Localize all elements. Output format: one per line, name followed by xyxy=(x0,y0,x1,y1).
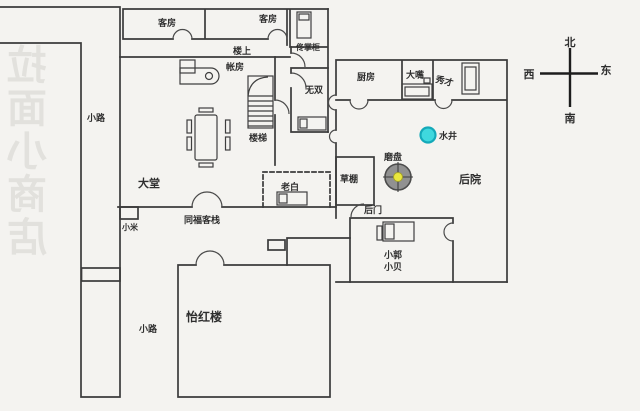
road-gate-box xyxy=(82,268,121,281)
compass-north-label: 北 xyxy=(565,35,576,49)
well-icon xyxy=(421,128,436,143)
door-arc-kitchen xyxy=(350,100,368,109)
tong-room-walls xyxy=(290,9,328,132)
door-arc-wushuang-room xyxy=(291,73,306,88)
label-zhangfang: 帐房 xyxy=(226,61,244,73)
bed-xiaoguo-side xyxy=(377,226,382,240)
label-main-hall: 大堂 xyxy=(138,176,160,190)
counter-stool-icon xyxy=(206,73,213,80)
labels-group: 客房 客房 楼上 佟掌柜 无双 帐房 楼梯 大堂 厨房 大嘴 秀才 水井 磨盘 … xyxy=(86,13,481,335)
millstone-center xyxy=(394,173,403,182)
connector-small-box xyxy=(268,240,285,250)
hall-stool-r1 xyxy=(226,120,231,133)
doors-group xyxy=(173,30,453,266)
hall-table-icon xyxy=(195,115,217,160)
kitchen-wing-walls xyxy=(336,60,507,282)
door-arc-courtyard-west-upper xyxy=(329,95,337,110)
label-guest-room-2: 客房 xyxy=(258,13,277,25)
stove-dazui-box xyxy=(424,78,430,83)
hall-stool-r2 xyxy=(226,137,231,150)
compass-east-label: 东 xyxy=(601,63,612,77)
label-xiaobei: 小贝 xyxy=(383,261,402,273)
counter-desk-icon xyxy=(180,60,195,73)
door-arc-xiucai-room xyxy=(435,100,452,109)
door-arc-guestroom1 xyxy=(173,30,192,40)
label-millstone: 磨盘 xyxy=(383,151,402,163)
label-straw-shed: 草棚 xyxy=(340,173,358,185)
door-arc-courtyard-west-lower xyxy=(330,130,337,143)
door-arc-tong-room xyxy=(291,53,305,67)
staircase-icon xyxy=(248,76,273,128)
bed-tong-pillow xyxy=(299,14,309,20)
label-upstairs: 楼上 xyxy=(233,45,251,57)
compass-west-label: 西 xyxy=(524,68,535,81)
door-arc-back-door xyxy=(351,204,364,217)
compass: 北 南 西 东 xyxy=(524,35,612,125)
door-arc-hall-corridor xyxy=(275,100,289,114)
label-wushuang: 无双 xyxy=(304,85,323,96)
road-walls xyxy=(0,7,120,397)
walls-group xyxy=(0,7,507,397)
label-guest-room-1: 客房 xyxy=(157,17,176,29)
label-well: 水井 xyxy=(439,130,457,142)
door-arc-xiaoguo-room xyxy=(444,223,453,241)
xiaomi-box xyxy=(120,207,138,219)
counter-rounded-icon xyxy=(180,68,219,84)
label-tong-zhanggui: 佟掌柜 xyxy=(295,42,320,52)
hall-bench-bottom xyxy=(199,163,213,167)
label-back-door: 后门 xyxy=(364,204,382,216)
bed-wushuang-pillow xyxy=(300,119,307,128)
label-xiaomi: 小米 xyxy=(121,222,139,232)
label-dazui: 大嘴 xyxy=(406,69,424,81)
bed-laobai-pillow xyxy=(279,194,287,203)
label-path-lower: 小路 xyxy=(138,323,158,335)
compass-south-label: 南 xyxy=(565,111,576,125)
label-xiaoguo: 小郭 xyxy=(383,249,402,261)
floorplan-page: 拉面小商店 xyxy=(0,0,640,411)
compass-cross xyxy=(540,48,598,107)
floorplan-svg: 北 南 西 东 客房 客房 楼上 佟掌柜 无双 帐房 楼梯 大堂 厨房 大嘴 秀… xyxy=(0,0,640,411)
hall-bench-top xyxy=(199,108,213,112)
door-arc-guestroom2 xyxy=(268,30,287,40)
label-yihonglou: 怡红楼 xyxy=(186,309,222,324)
label-laobai: 老白 xyxy=(280,181,299,193)
stove-dazui xyxy=(402,84,432,99)
label-stairs: 楼梯 xyxy=(249,132,267,144)
label-inn-sign: 同福客栈 xyxy=(184,214,220,226)
staircase-treads xyxy=(248,77,273,126)
label-path-upper: 小路 xyxy=(86,112,106,124)
door-arc-main-entrance xyxy=(192,192,222,207)
stove-dazui-inner xyxy=(405,87,429,96)
yihonglou-walls xyxy=(178,265,330,397)
label-xiucai: 秀才 xyxy=(433,73,454,89)
millstone-icon xyxy=(383,162,413,192)
hall-stool-l1 xyxy=(187,120,192,133)
label-kitchen: 厨房 xyxy=(357,71,375,83)
hall-stool-l2 xyxy=(187,137,192,150)
bed-xiaoguo-pillow xyxy=(385,224,394,239)
connector-walls xyxy=(287,238,350,265)
door-arc-yihonglou xyxy=(196,251,224,265)
label-backyard: 后院 xyxy=(459,172,481,186)
bed-xiaoguo xyxy=(383,222,414,241)
cabinet-xiucai-inner xyxy=(465,67,476,90)
